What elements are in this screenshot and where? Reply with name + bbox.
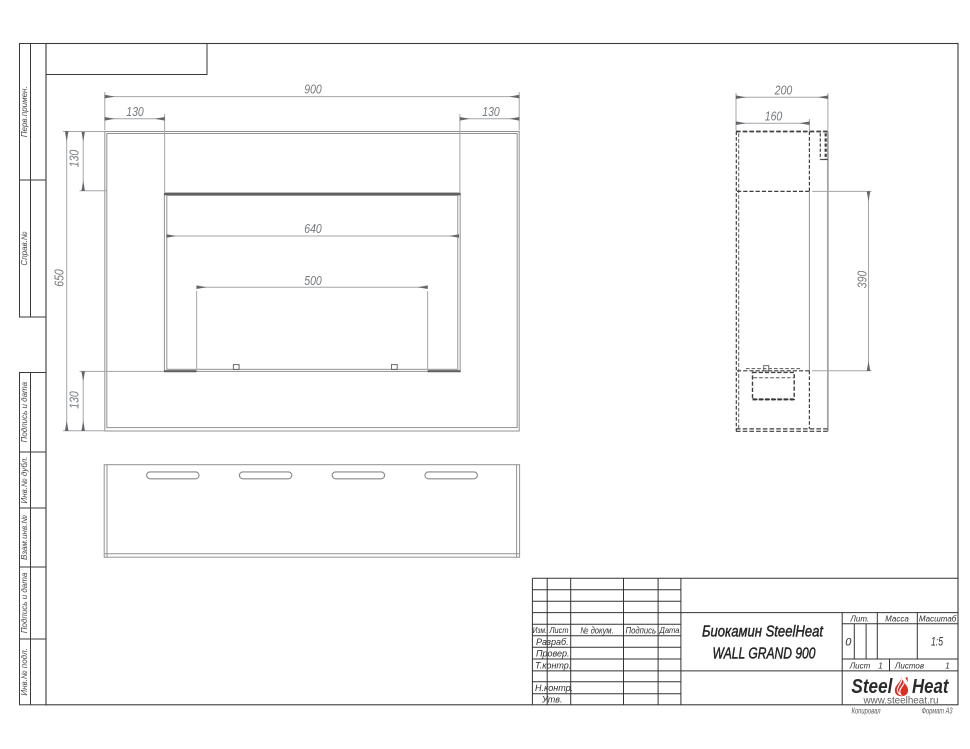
svg-text:130: 130 (67, 150, 81, 168)
svg-text:№ докум.: № докум. (580, 625, 614, 635)
svg-text:Масштаб: Масштаб (919, 614, 957, 623)
svg-text:130: 130 (67, 391, 81, 409)
svg-text:Т.контр.: Т.контр. (535, 660, 571, 670)
svg-text:www.steelheat.ru: www.steelheat.ru (863, 695, 939, 707)
svg-text:Копировал: Копировал (852, 706, 881, 715)
svg-text:WALL GRAND 900: WALL GRAND 900 (713, 646, 816, 663)
svg-text:640: 640 (304, 222, 322, 236)
svg-text:Подпись: Подпись (626, 625, 657, 635)
svg-text:Перв.примен.: Перв.примен. (20, 86, 29, 137)
svg-text:650: 650 (53, 269, 67, 287)
svg-text:1: 1 (945, 661, 949, 670)
svg-text:Н.контр.: Н.контр. (535, 683, 573, 693)
svg-text:Подпись и дата: Подпись и дата (20, 572, 29, 633)
svg-text:Лист: Лист (549, 626, 569, 635)
svg-text:390: 390 (856, 271, 870, 289)
svg-text:Разраб.: Разраб. (536, 637, 569, 647)
svg-text:Взам.инв.№: Взам.инв.№ (20, 515, 29, 560)
svg-text:Провер.: Провер. (536, 648, 570, 658)
svg-text:500: 500 (304, 274, 322, 288)
svg-text:130: 130 (482, 105, 500, 119)
svg-text:Листов: Листов (894, 661, 924, 670)
svg-text:130: 130 (126, 105, 144, 119)
svg-text:900: 900 (304, 83, 322, 97)
svg-text:0: 0 (845, 637, 852, 649)
svg-text:Лит.: Лит. (849, 614, 869, 623)
svg-text:Инв.№ подл.: Инв.№ подл. (20, 648, 29, 695)
svg-text:Масса: Масса (885, 614, 909, 623)
svg-text:Лист: Лист (849, 661, 871, 670)
svg-text:Справ.№: Справ.№ (20, 231, 29, 265)
svg-text:Изм.: Изм. (533, 626, 547, 635)
svg-text:1: 1 (878, 661, 882, 670)
svg-text:160: 160 (765, 109, 783, 123)
svg-text:Дата: Дата (659, 626, 680, 635)
svg-text:200: 200 (774, 84, 792, 98)
svg-text:Формат А3: Формат А3 (922, 706, 953, 715)
svg-text:Биокамин SteelHeat: Биокамин SteelHeat (702, 624, 823, 641)
svg-text:Утв.: Утв. (541, 695, 562, 705)
svg-text:Подпись и дата: Подпись и дата (20, 381, 29, 442)
svg-text:1:5: 1:5 (931, 637, 943, 649)
svg-text:Инв.№ дубл.: Инв.№ дубл. (20, 457, 29, 504)
